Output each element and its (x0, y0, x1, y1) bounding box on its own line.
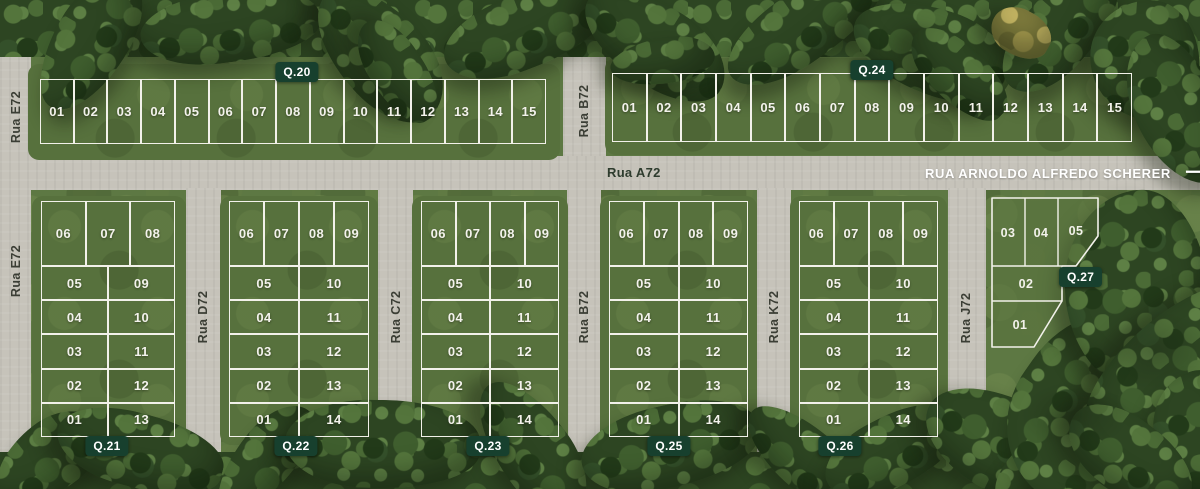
lot-number: 07 (830, 100, 845, 115)
lot-number: 01 (49, 104, 64, 119)
lot-number: 13 (134, 412, 149, 427)
lot-15: 15 (1097, 73, 1132, 142)
lot-14: 14 (490, 403, 559, 437)
lot-number: 14 (488, 104, 503, 119)
lot-number: 05 (1069, 224, 1084, 238)
lot-03: 03 (421, 334, 490, 368)
lot-number: 05 (256, 276, 271, 291)
lot-number: 14 (517, 412, 532, 427)
lot-number: 04 (726, 100, 741, 115)
lot-14: 14 (479, 79, 513, 144)
lot-number: 06 (431, 226, 446, 241)
lot-08: 08 (299, 201, 334, 266)
lot-03: 03 (229, 334, 299, 368)
lot-07: 07 (86, 201, 131, 266)
lot-number: 02 (636, 378, 651, 393)
direction-arrow-icon: ⟶ (1185, 160, 1200, 183)
block-badge-q25: Q.25 (647, 436, 690, 456)
lot-number: 11 (706, 310, 721, 325)
lot-number: 10 (896, 276, 911, 291)
lot-number: 01 (622, 100, 637, 115)
lot-number: 09 (899, 100, 914, 115)
lot-number: 01 (826, 412, 841, 427)
lot-number: 02 (826, 378, 841, 393)
lot-10: 10 (869, 266, 939, 300)
lot-06: 06 (609, 201, 644, 266)
lot-01: 01 (229, 403, 299, 437)
lot-number: 05 (67, 276, 82, 291)
lot-10: 10 (299, 266, 369, 300)
lot-12: 12 (299, 334, 369, 368)
lot-11: 11 (377, 79, 411, 144)
lot-number: 04 (1034, 226, 1049, 240)
lot-13: 13 (299, 369, 369, 403)
lot-number: 06 (619, 226, 634, 241)
lot-number: 09 (723, 226, 738, 241)
lot-01: 01 (609, 403, 679, 437)
lot-number: 09 (913, 226, 928, 241)
street-label-rua-j72: Rua J72 (959, 293, 973, 344)
block-badge-q26: Q.26 (818, 436, 861, 456)
lot-09: 09 (310, 79, 344, 144)
lot-03: 03 (681, 73, 716, 142)
lot-number: 06 (218, 104, 233, 119)
lot-number: 10 (353, 104, 368, 119)
lot-03: 03 (41, 334, 108, 368)
lot-number: 04 (256, 310, 271, 325)
lot-13: 13 (108, 403, 175, 437)
lot-10: 10 (344, 79, 378, 144)
lot-12: 12 (993, 73, 1028, 142)
lot-02: 02 (421, 369, 490, 403)
lot-08: 08 (679, 201, 714, 266)
lot-number: 11 (517, 310, 532, 325)
street-label-rua-k72: Rua K72 (767, 291, 781, 344)
street-label-rua-a72: Rua A72 (607, 165, 661, 180)
lot-number: 04 (636, 310, 651, 325)
lot-number: 10 (326, 276, 341, 291)
lot-number: 08 (688, 226, 703, 241)
lot-11: 11 (959, 73, 994, 142)
block-badge-q21: Q.21 (85, 436, 128, 456)
lot-number: 03 (691, 100, 706, 115)
lot-number: 03 (256, 344, 271, 359)
lot-number: 02 (656, 100, 671, 115)
lot-number: 11 (896, 310, 911, 325)
lot-number: 03 (826, 344, 841, 359)
lot-number: 08 (285, 104, 300, 119)
lot-number: 11 (969, 100, 984, 115)
lot-number: 07 (653, 226, 668, 241)
lot-08: 08 (490, 201, 525, 266)
lot-number: 15 (521, 104, 536, 119)
lot-01: 01 (612, 73, 647, 142)
lot-06: 06 (421, 201, 456, 266)
lot-number: 06 (809, 226, 824, 241)
street-label-rua-e72-bottom: Rua E72 (9, 245, 23, 297)
lot-08: 08 (869, 201, 904, 266)
lot-number: 07 (843, 226, 858, 241)
lot-number: 09 (134, 276, 149, 291)
lot-05: 05 (175, 79, 209, 144)
lot-number: 12 (706, 344, 721, 359)
lot-04: 04 (799, 300, 869, 334)
lot-06: 06 (209, 79, 243, 144)
lot-number: 10 (706, 276, 721, 291)
lot-number: 04 (826, 310, 841, 325)
lot-01: 01 (799, 403, 869, 437)
lot-number: 12 (420, 104, 435, 119)
lot-number: 01 (1013, 318, 1028, 332)
lot-number: 03 (67, 344, 82, 359)
lot-03: 03 (799, 334, 869, 368)
lot-number: 14 (1072, 100, 1087, 115)
lot-04: 04 (421, 300, 490, 334)
street-label-rua-b72-bottom: Rua B72 (577, 291, 591, 344)
street-label-rua-c72: Rua C72 (389, 291, 403, 344)
lot-number: 03 (448, 344, 463, 359)
lot-number: 03 (117, 104, 132, 119)
street-label-rua-b72-top: Rua B72 (577, 85, 591, 138)
lot-14: 14 (869, 403, 939, 437)
lot-number: 13 (517, 378, 532, 393)
lot-number: 05 (760, 100, 775, 115)
lot-number: 02 (256, 378, 271, 393)
lot-number: 08 (878, 226, 893, 241)
lot-number: 05 (636, 276, 651, 291)
lot-number: 03 (636, 344, 651, 359)
street-label-rua-e72-top: Rua E72 (9, 91, 23, 143)
lot-05: 05 (229, 266, 299, 300)
lot-02: 02 (647, 73, 682, 142)
lot-04: 04 (229, 300, 299, 334)
avenue-name: RUA ARNOLDO ALFREDO SCHERER (925, 166, 1171, 181)
lot-12: 12 (869, 334, 939, 368)
lot-07: 07 (456, 201, 491, 266)
lot-09: 09 (903, 201, 938, 266)
lot-number: 12 (517, 344, 532, 359)
lot-04: 04 (609, 300, 679, 334)
lot-11: 11 (108, 334, 175, 368)
lot-05: 05 (751, 73, 786, 142)
lot-09: 09 (713, 201, 748, 266)
lot-08: 08 (855, 73, 890, 142)
lot-10: 10 (679, 266, 749, 300)
lot-04: 04 (141, 79, 175, 144)
lot-number: 13 (706, 378, 721, 393)
lot-01: 01 (421, 403, 490, 437)
lot-08: 08 (130, 201, 175, 266)
lot-number: 03 (1001, 226, 1016, 240)
lot-06: 06 (229, 201, 264, 266)
lot-number: 02 (448, 378, 463, 393)
lot-10: 10 (108, 300, 175, 334)
lot-02: 02 (799, 369, 869, 403)
lot-10: 10 (924, 73, 959, 142)
lot-number: 13 (896, 378, 911, 393)
lot-14: 14 (679, 403, 749, 437)
lot-06: 06 (785, 73, 820, 142)
lot-number: 01 (67, 412, 82, 427)
lot-number: 05 (184, 104, 199, 119)
lot-07: 07 (820, 73, 855, 142)
lot-number: 14 (706, 412, 721, 427)
lot-13: 13 (445, 79, 479, 144)
lot-number: 12 (1003, 100, 1018, 115)
lot-04: 04 (716, 73, 751, 142)
lot-05: 05 (421, 266, 490, 300)
lot-09: 09 (108, 266, 175, 300)
lot-09: 09 (334, 201, 369, 266)
lot-number: 01 (256, 412, 271, 427)
lot-11: 11 (299, 300, 369, 334)
lot-06: 06 (799, 201, 834, 266)
lot-number: 04 (448, 310, 463, 325)
lot-number: 09 (344, 226, 359, 241)
lot-13: 13 (1028, 73, 1063, 142)
lot-02: 02 (41, 369, 108, 403)
lot-number: 10 (934, 100, 949, 115)
lot-11: 11 (490, 300, 559, 334)
lot-number: 02 (1019, 277, 1034, 291)
lot-12: 12 (108, 369, 175, 403)
lot-02: 02 (229, 369, 299, 403)
lot-13: 13 (679, 369, 749, 403)
lot-number: 05 (448, 276, 463, 291)
lot-number: 01 (448, 412, 463, 427)
lot-11: 11 (869, 300, 939, 334)
lot-number: 07 (252, 104, 267, 119)
lot-13: 13 (869, 369, 939, 403)
lot-number: 09 (534, 226, 549, 241)
lot-14: 14 (299, 403, 369, 437)
lot-number: 06 (56, 226, 71, 241)
lot-06: 06 (41, 201, 86, 266)
site-plan-map: 03 04 05 02 01 Rua E72 Rua B72 Rua E72 R… (0, 0, 1200, 489)
lot-number: 02 (67, 378, 82, 393)
street-label-avenue: RUA ARNOLDO ALFREDO SCHERER ⟶ (925, 166, 1200, 181)
lot-number: 14 (896, 412, 911, 427)
block-badge-q27: Q.27 (1059, 267, 1102, 287)
lot-number: 15 (1107, 100, 1122, 115)
lot-number: 01 (636, 412, 651, 427)
block-badge-q24: Q.24 (850, 60, 893, 80)
lot-04: 04 (41, 300, 108, 334)
lot-number: 04 (150, 104, 165, 119)
lot-07: 07 (264, 201, 299, 266)
tree-shadow (1000, 368, 1150, 463)
street-label-rua-d72: Rua D72 (196, 291, 210, 344)
lot-12: 12 (679, 334, 749, 368)
lot-number: 13 (454, 104, 469, 119)
lot-number: 07 (465, 226, 480, 241)
lot-number: 10 (517, 276, 532, 291)
lot-number: 08 (500, 226, 515, 241)
lot-number: 04 (67, 310, 82, 325)
lot-12: 12 (490, 334, 559, 368)
lot-05: 05 (609, 266, 679, 300)
lot-08: 08 (276, 79, 310, 144)
block-badge-q20: Q.20 (275, 62, 318, 82)
lot-15: 15 (512, 79, 546, 144)
lot-number: 13 (326, 378, 341, 393)
lot-number: 10 (134, 310, 149, 325)
lot-10: 10 (490, 266, 559, 300)
lot-number: 14 (326, 412, 341, 427)
lot-number: 13 (1038, 100, 1053, 115)
lot-07: 07 (834, 201, 869, 266)
lot-number: 07 (274, 226, 289, 241)
block-badge-q23: Q.23 (466, 436, 509, 456)
lot-02: 02 (74, 79, 108, 144)
lot-number: 11 (327, 310, 342, 325)
lot-number: 08 (309, 226, 324, 241)
lot-11: 11 (679, 300, 749, 334)
lot-number: 11 (134, 344, 149, 359)
lot-number: 12 (896, 344, 911, 359)
lot-number: 12 (326, 344, 341, 359)
lot-number: 08 (145, 226, 160, 241)
lot-09: 09 (889, 73, 924, 142)
lot-09: 09 (525, 201, 560, 266)
lot-07: 07 (242, 79, 276, 144)
lot-number: 07 (100, 226, 115, 241)
lot-05: 05 (799, 266, 869, 300)
lot-03: 03 (107, 79, 141, 144)
lot-number: 06 (795, 100, 810, 115)
lot-13: 13 (490, 369, 559, 403)
lot-05: 05 (41, 266, 108, 300)
lot-number: 08 (864, 100, 879, 115)
lot-07: 07 (644, 201, 679, 266)
lot-03: 03 (609, 334, 679, 368)
lot-number: 12 (134, 378, 149, 393)
lot-number: 02 (83, 104, 98, 119)
block-badge-q22: Q.22 (274, 436, 317, 456)
lot-number: 05 (826, 276, 841, 291)
lot-number: 11 (387, 104, 402, 119)
lot-14: 14 (1063, 73, 1098, 142)
lot-number: 09 (319, 104, 334, 119)
lot-12: 12 (411, 79, 445, 144)
lot-number: 06 (239, 226, 254, 241)
lot-02: 02 (609, 369, 679, 403)
lot-01: 01 (40, 79, 74, 144)
lot-01: 01 (41, 403, 108, 437)
